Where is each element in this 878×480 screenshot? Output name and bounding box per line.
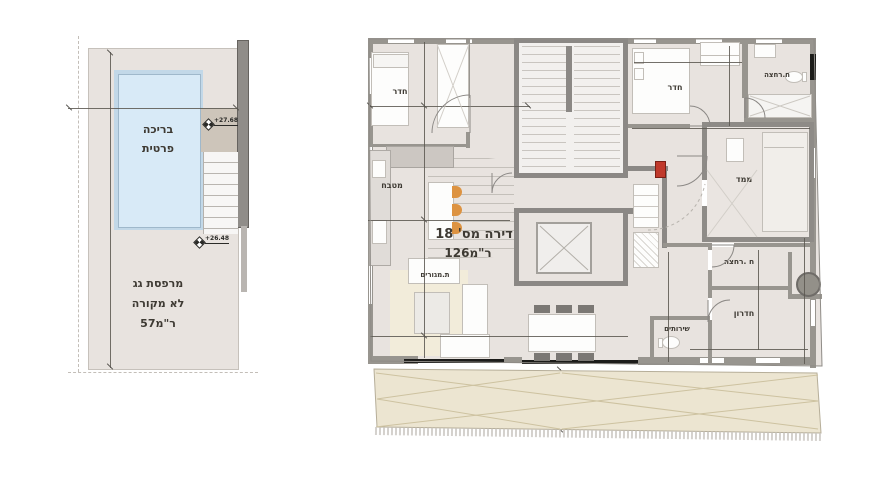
entry-dashed-arc — [648, 184, 705, 230]
apartment-outline — [369, 39, 822, 366]
wardrobe-diagonals — [437, 44, 757, 237]
elevator-x-mark — [540, 226, 588, 270]
floor-plan-sheet: בריכה פרטית +27.68 +26.48 מרפסת גג לא מק… — [0, 0, 878, 480]
shower-x-mark — [750, 96, 810, 116]
plan-linework-overlay — [0, 0, 878, 480]
door-swing-arcs — [432, 95, 765, 322]
